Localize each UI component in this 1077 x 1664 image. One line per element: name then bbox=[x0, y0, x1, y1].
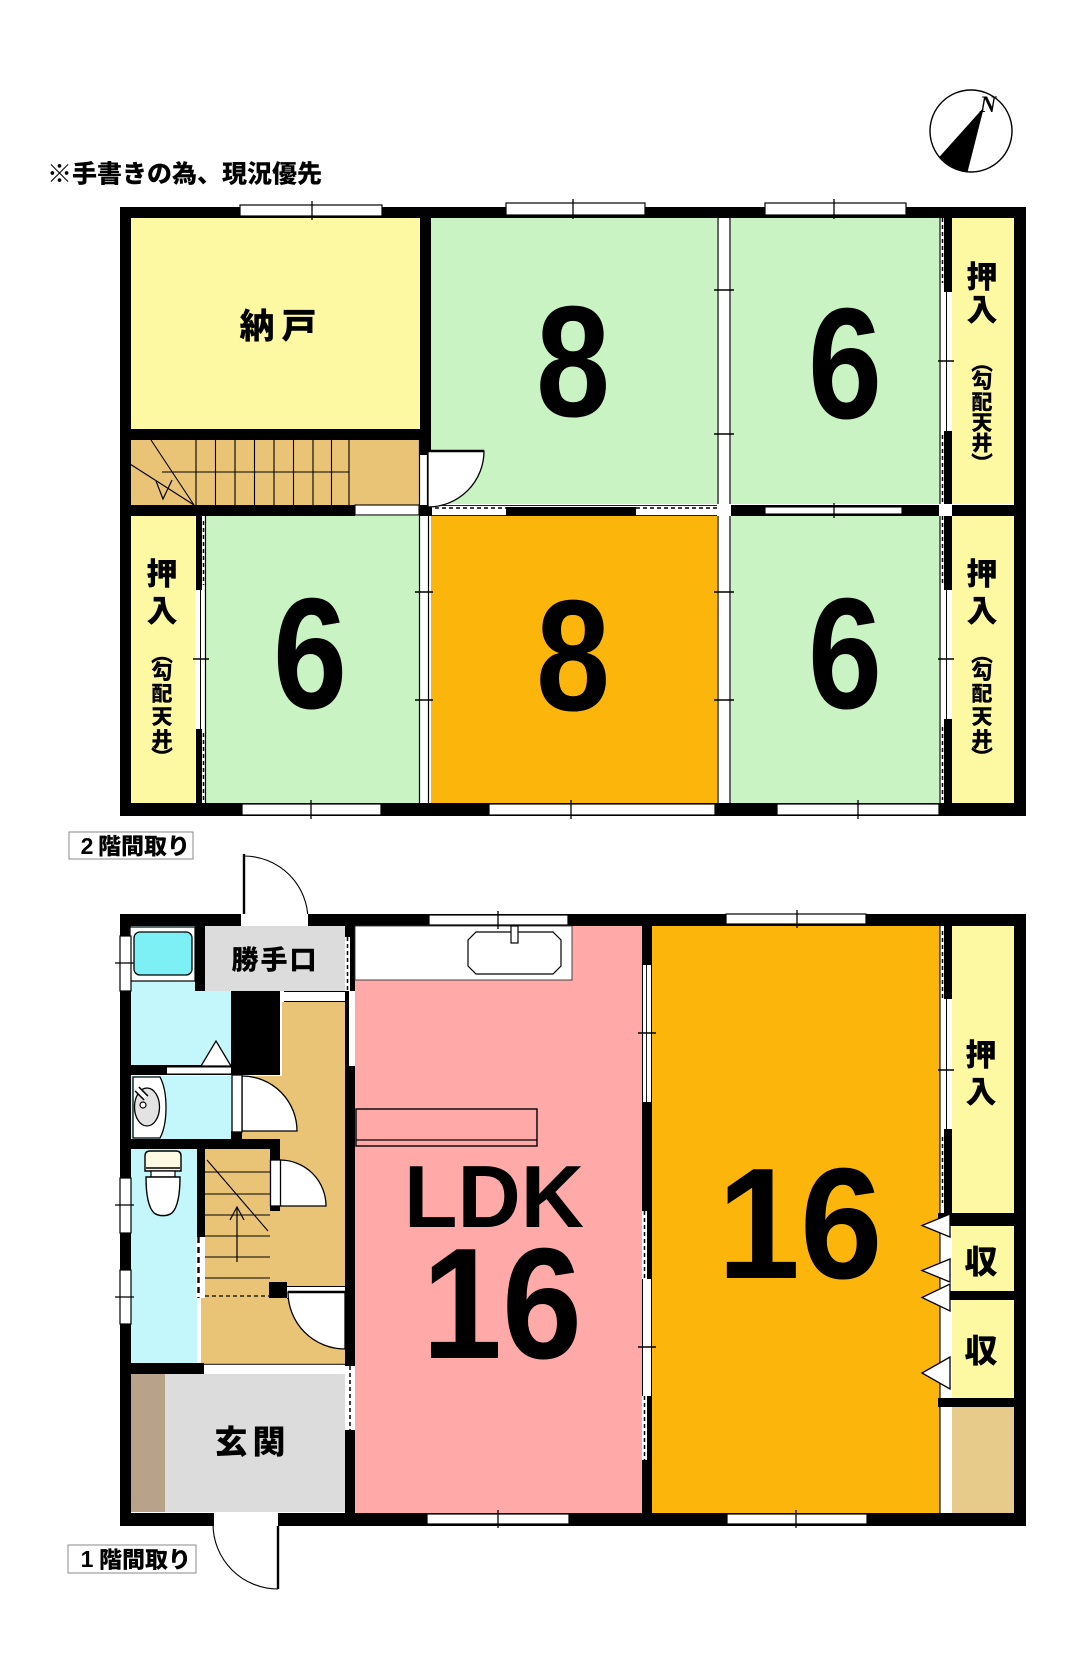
svg-text:2: 2 bbox=[81, 833, 94, 859]
svg-text:N: N bbox=[979, 92, 998, 117]
svg-text:16: 16 bbox=[422, 1216, 582, 1392]
svg-text:8: 8 bbox=[536, 274, 610, 450]
svg-text:6: 6 bbox=[808, 276, 882, 452]
svg-text:8: 8 bbox=[536, 568, 610, 744]
svg-text:6: 6 bbox=[273, 566, 347, 742]
svg-text:1: 1 bbox=[81, 1546, 94, 1572]
svg-text:16: 16 bbox=[718, 1136, 883, 1312]
svg-text:6: 6 bbox=[808, 566, 882, 742]
